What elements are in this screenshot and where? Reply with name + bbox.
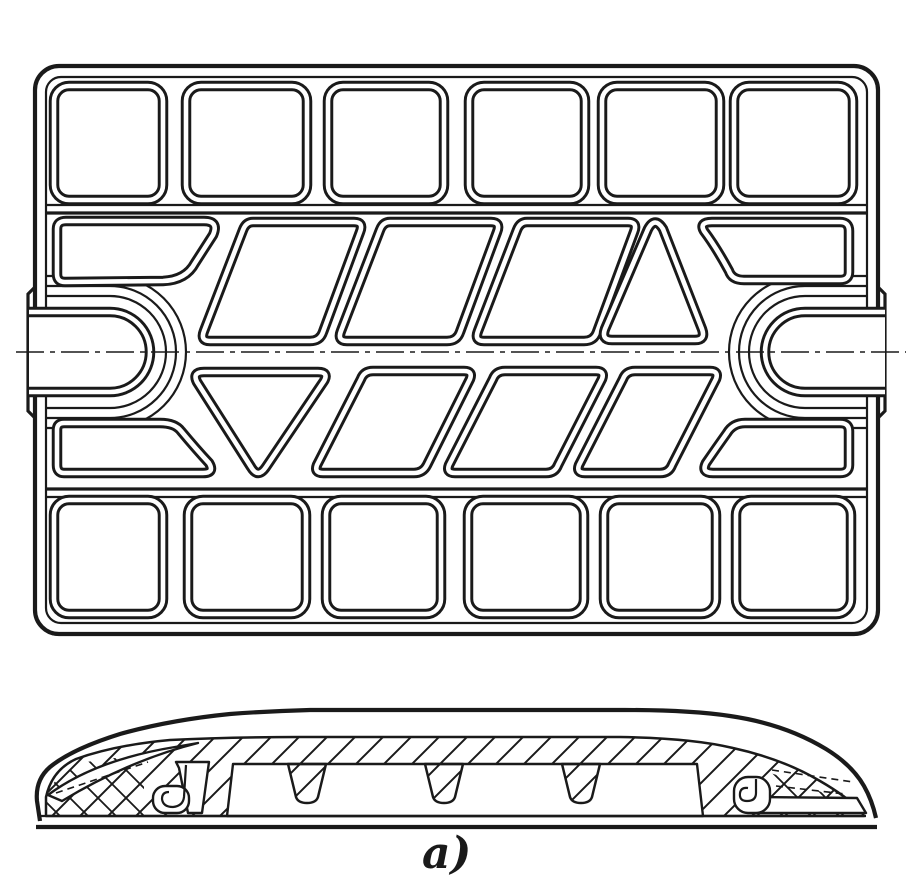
tread-block-square: [468, 500, 584, 614]
tread-block-parallelogram: [203, 222, 361, 341]
tread-block-square: [186, 86, 307, 200]
tread-block-square: [54, 86, 163, 200]
tread-block-parallelogram: [340, 222, 498, 341]
tread-block-square: [604, 500, 716, 614]
tread-row-top: [54, 86, 853, 200]
tread-block-square: [188, 500, 306, 614]
technical-drawing-canvas: a): [0, 0, 923, 890]
tread-block-corner-trapezoid: [703, 222, 849, 280]
tread-row-bottom: [54, 500, 851, 614]
figure-track-pad-drawing: a): [0, 0, 923, 890]
plan-view: [16, 66, 906, 634]
tread-block-square: [326, 500, 441, 614]
tread-block-triangle-down: [196, 372, 326, 473]
tread-band-upper: [57, 221, 849, 341]
row-separator-top: [46, 205, 867, 213]
tread-block-square: [328, 86, 444, 200]
tread-block-square: [736, 500, 851, 614]
tread-block-square: [602, 86, 720, 200]
tread-block-square: [54, 500, 163, 614]
tread-block-corner-trapezoid: [57, 221, 215, 282]
tread-band-lower: [57, 371, 849, 473]
row-separator-bottom: [46, 489, 867, 497]
tread-block-corner-trapezoid: [57, 423, 211, 473]
tread-block-square: [734, 86, 853, 200]
figure-label: a): [422, 828, 471, 879]
cross-section-view: [36, 710, 877, 827]
tread-block-square: [469, 86, 585, 200]
